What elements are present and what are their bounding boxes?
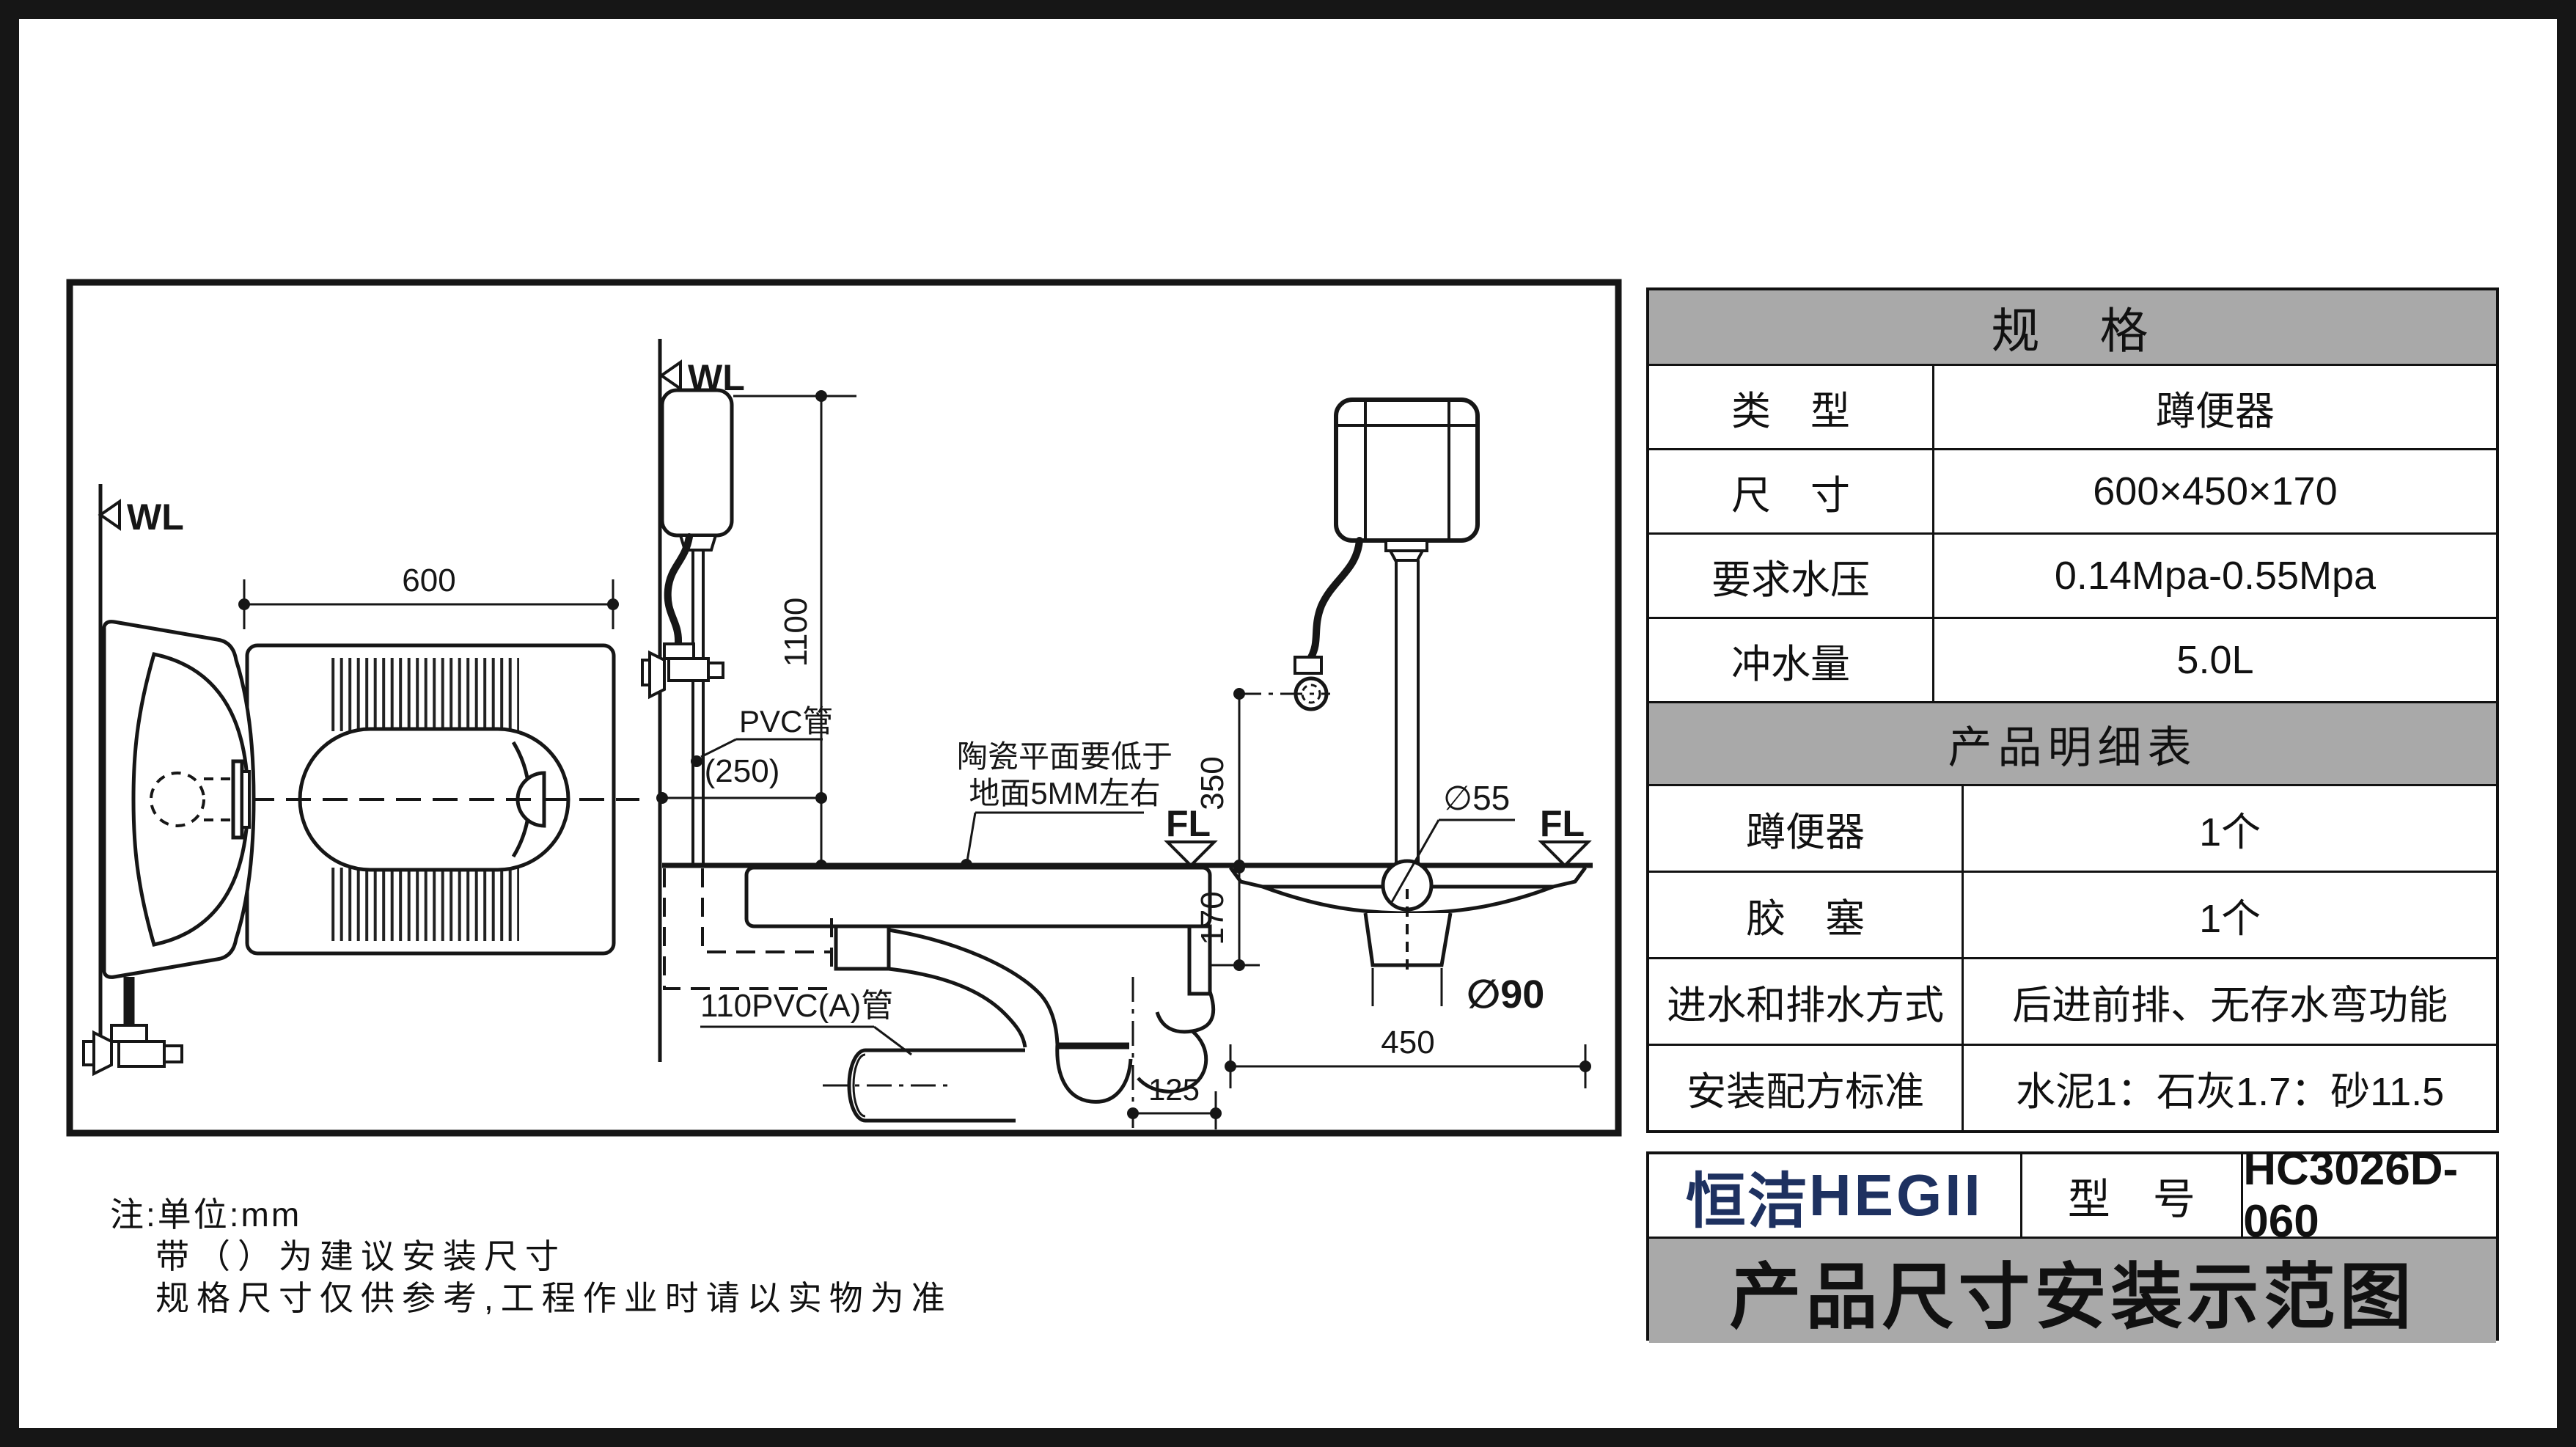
note-line: 带（）为建议安装尺寸: [155, 1236, 953, 1278]
table-row: 进水和排水方式 后进前排、无存水弯功能: [1649, 957, 2496, 1044]
model-value: HC3026D-060: [2243, 1154, 2496, 1237]
note-line: 注:单位:mm: [110, 1194, 953, 1236]
detail-value: 后进前排、无存水弯功能: [1964, 959, 2496, 1044]
pan-ribs-bottom: [329, 868, 519, 941]
brand-logo-en: HEGII: [1809, 1162, 1984, 1229]
cistern-plan-outline: [104, 622, 254, 978]
spec-label: 冲水量: [1649, 619, 1934, 701]
table-row: 蹲便器 1个: [1649, 784, 2496, 871]
brand-logo: 恒洁HEGII: [1649, 1154, 2022, 1237]
table-row: 安装配方标准 水泥1：石灰1.7：砂11.5: [1649, 1044, 2496, 1130]
dim-125-text: 125: [1148, 1072, 1200, 1107]
spec-table-header: 规 格: [1649, 290, 2496, 364]
detail-label: 胶 塞: [1649, 873, 1964, 957]
detail-label: 蹲便器: [1649, 786, 1964, 871]
detail-table-header: 产品明细表: [1649, 701, 2496, 784]
inlet-socket: [1383, 861, 1431, 909]
dim-250-text: (250): [705, 753, 780, 789]
detail-table: 产品明细表 蹲便器 1个 胶 塞 1个 进水和排水方式 后进前排、无存水弯功能 …: [1649, 701, 2496, 1130]
dim-450-text: 450: [1381, 1025, 1434, 1060]
detail-value: 水泥1：石灰1.7：砂11.5: [1964, 1046, 2496, 1130]
pan-side-slab: [746, 868, 1210, 926]
detail-value: 1个: [1964, 873, 2496, 957]
spec-value: 5.0L: [1934, 619, 2496, 701]
inlet-spud: [836, 926, 889, 969]
spec-label: 类 型: [1649, 366, 1934, 448]
sheet-title: 产品尺寸安装示范图: [1649, 1237, 2496, 1343]
table-row: 胶 塞 1个: [1649, 871, 2496, 957]
title-block-row: 恒洁HEGII 型 号 HC3026D-060: [1649, 1154, 2496, 1237]
spec-value: 蹲便器: [1934, 366, 2496, 448]
detail-label: 进水和排水方式: [1649, 959, 1964, 1044]
table-row: 尺 寸 600×450×170: [1649, 448, 2496, 532]
surface-note-line2: 地面5MM左右: [969, 776, 1160, 810]
flush-pipe-label: PVC管: [739, 704, 833, 739]
pan-ribs-top: [329, 658, 519, 731]
table-row: 冲水量 5.0L: [1649, 617, 2496, 701]
detail-value: 1个: [1964, 786, 2496, 871]
surface-note-line1: 陶瓷平面要低于: [957, 739, 1173, 774]
detail-label: 安装配方标准: [1649, 1046, 1964, 1130]
table-row: 类 型 蹲便器: [1649, 364, 2496, 448]
notes: 注:单位:mm 带（）为建议安装尺寸 规格尺寸仅供参考,工程作业时请以实物为准: [110, 1194, 953, 1319]
spec-label: 要求水压: [1649, 535, 1934, 617]
spec-value: 0.14Mpa-0.55Mpa: [1934, 535, 2496, 617]
hose-nut: [1295, 657, 1321, 673]
drain-pipe-label: 110PVC(A)管: [700, 988, 893, 1024]
cistern-front: [1336, 400, 1478, 541]
table-row: 要求水压 0.14Mpa-0.55Mpa: [1649, 532, 2496, 617]
outlet-spigot: [1365, 913, 1450, 965]
dim-1100-text: 1100: [778, 598, 814, 667]
dim-600-text: 600: [402, 563, 455, 598]
brand-logo-cn: 恒洁: [1686, 1152, 1809, 1239]
floor-label: FL: [1540, 803, 1585, 844]
title-block: 恒洁HEGII 型 号 HC3026D-060 产品尺寸安装示范图: [1646, 1151, 2499, 1341]
cistern-side: [662, 390, 732, 535]
dim-55-text: ∅55: [1443, 779, 1510, 817]
dim-90-text: ∅90: [1467, 972, 1544, 1016]
note-line: 规格尺寸仅供参考,工程作业时请以实物为准: [155, 1278, 953, 1319]
spec-and-detail-tables: 规 格 类 型 蹲便器 尺 寸 600×450×170 要求水压 0.14Mpa…: [1646, 287, 2499, 1133]
spec-value: 600×450×170: [1934, 450, 2496, 532]
dim-350-text: 350: [1195, 756, 1230, 810]
dim-170-text: 170: [1195, 891, 1230, 945]
wall-label: WL: [127, 497, 184, 538]
drawing-sheet: WL 600: [0, 0, 2576, 1447]
spec-label: 尺 寸: [1649, 450, 1934, 532]
spec-table: 规 格 类 型 蹲便器 尺 寸 600×450×170 要求水压 0.14Mpa…: [1649, 290, 2496, 701]
model-label: 型 号: [2022, 1154, 2244, 1237]
